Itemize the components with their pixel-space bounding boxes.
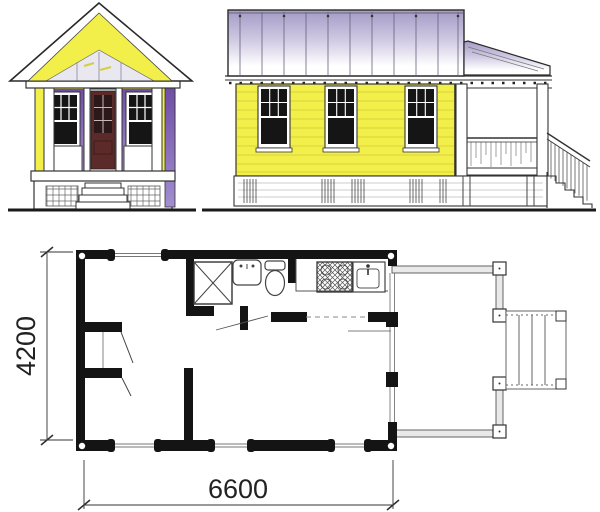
plan-window [107,439,162,452]
deck-rail-right-upper [496,274,503,310]
shower-symbol [194,262,232,304]
width-dimension: 6600 [78,460,399,510]
porch-column [116,87,122,171]
corner-post [79,253,85,259]
porch-post [456,84,467,176]
toilet-symbol [265,261,285,296]
porch-deck-band [31,171,175,181]
door-swing [122,378,131,396]
metal-roof [228,10,464,76]
porch-bottom-rail [465,168,539,175]
deck [392,262,566,438]
plan-window [107,249,169,261]
corner-pilaster [165,87,175,207]
plan-window [327,439,372,452]
closet-wall [84,368,122,378]
corner-post [388,443,394,449]
side-window-2 [323,86,359,152]
front-door [89,89,117,171]
side-elevation-view [200,0,600,220]
porch-column [84,87,90,171]
side-stairs [547,133,592,208]
gable-roof [10,3,192,81]
lattice-panel-left [46,186,78,206]
deck-rail-bottom [392,430,496,437]
kitchen-wall [288,259,296,283]
side-window-3 [403,86,439,152]
width-dimension-label: 6600 [208,474,268,504]
side-porch [455,84,552,176]
deck-steps [506,311,566,389]
eave [225,76,552,83]
plan-window [390,387,395,422]
closet-door-swing [121,332,133,363]
architectural-drawing-sheet: 4200 6600 [0,0,600,512]
kitchen-sink-symbol [353,262,385,292]
deck-rail-right-lower [496,390,503,427]
porch-column [44,87,54,171]
depth-dimension-label: 4200 [11,316,41,376]
porch-shed-roof [464,41,550,75]
corner-post [79,443,85,449]
plan-window [207,439,255,452]
depth-dimension: 4200 [11,247,73,445]
closet-wall [84,322,122,332]
front-foundation [34,180,172,209]
stair-steps [547,172,592,208]
front-elevation-view [2,0,200,220]
bathroom-sink-symbol [233,260,261,285]
lattice-panel-right [128,186,160,206]
side-window-1 [256,86,292,152]
floor-plan-view: 4200 6600 [0,220,600,512]
porch-post [537,84,548,176]
stove-symbol [317,262,352,292]
bedroom-wall [184,368,193,451]
porch-column [152,87,162,171]
side-foundation [234,176,547,206]
corner-post [388,253,394,259]
stair-handrail [547,133,590,161]
plan-window [390,327,395,372]
deck-rail-top [392,266,496,273]
